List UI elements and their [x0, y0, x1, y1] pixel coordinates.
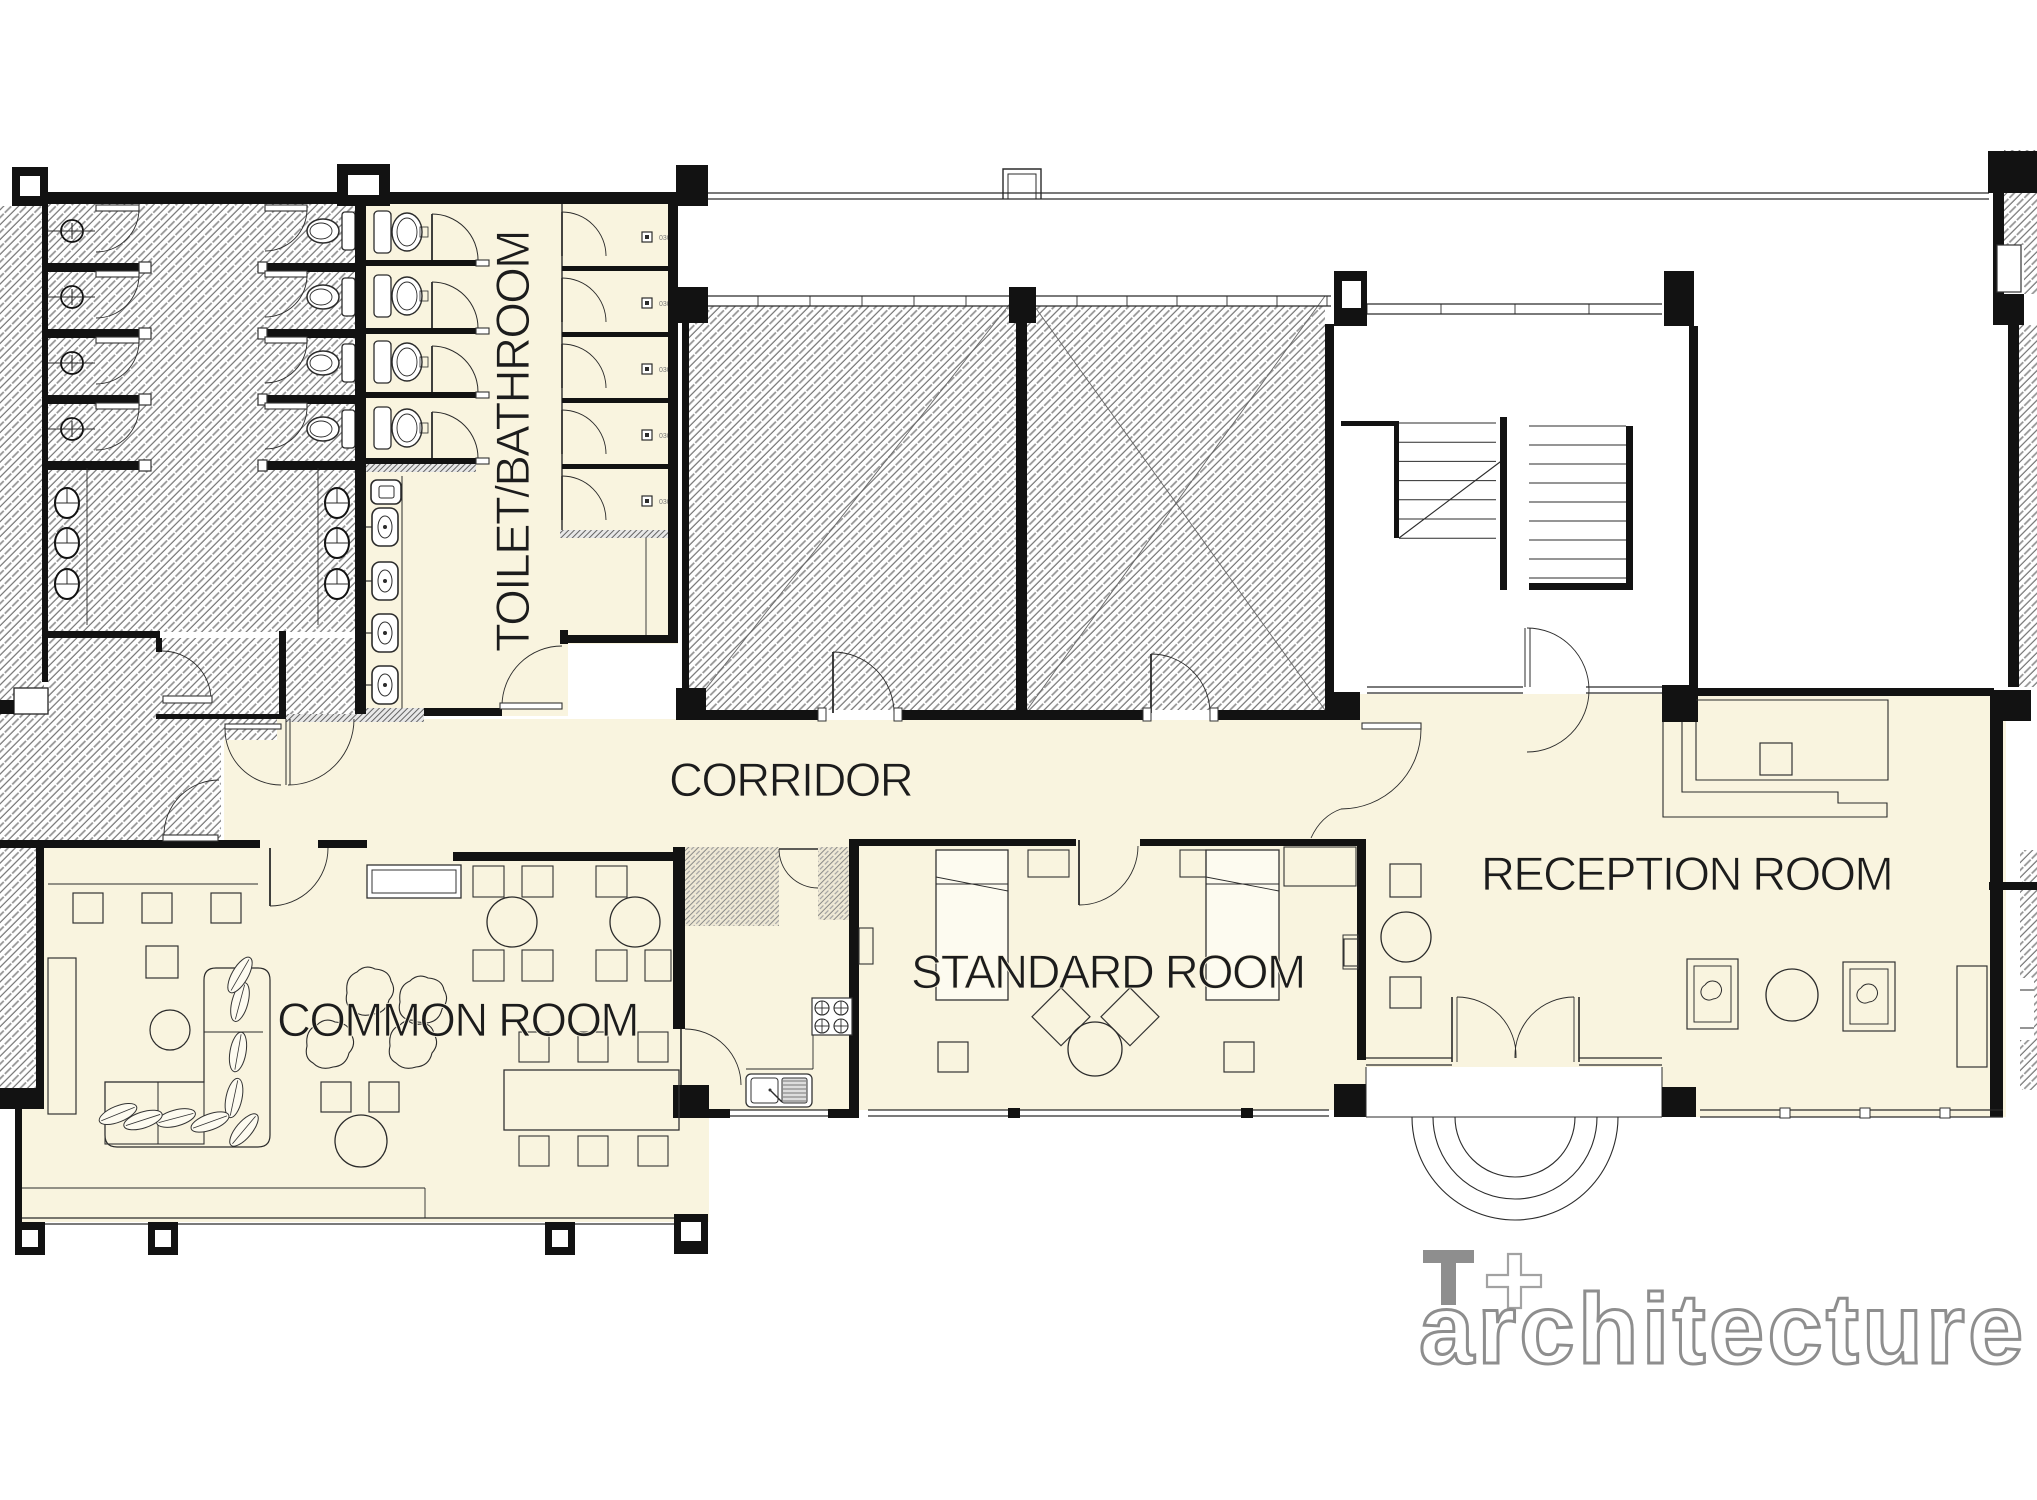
- svg-text:RECEPTION ROOM: RECEPTION ROOM: [1481, 847, 1892, 900]
- svg-text:STANDARD ROOM: STANDARD ROOM: [911, 945, 1305, 998]
- svg-text:CORRIDOR: CORRIDOR: [669, 753, 912, 806]
- svg-text:COMMON ROOM: COMMON ROOM: [277, 993, 638, 1046]
- svg-text:TOILET/BATHROOM: TOILET/BATHROOM: [486, 231, 539, 652]
- svg-text:architecture: architecture: [1419, 1273, 2027, 1384]
